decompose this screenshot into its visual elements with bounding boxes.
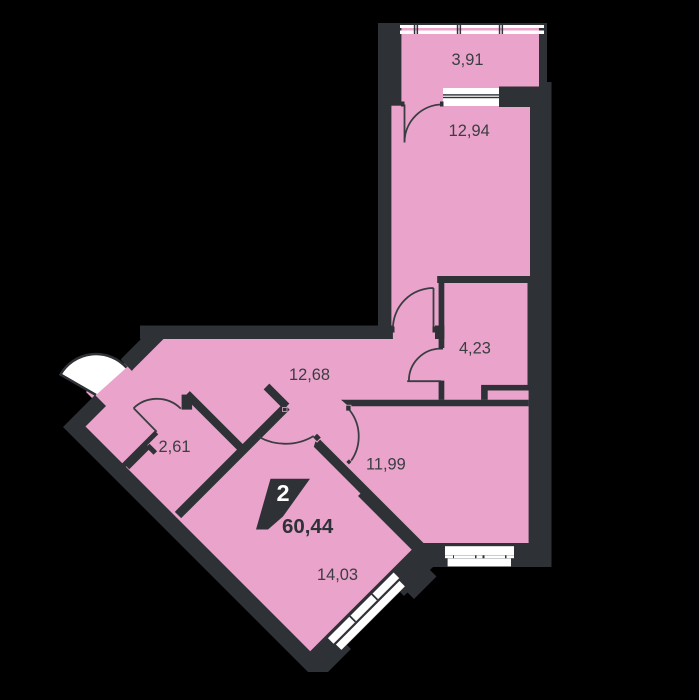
svg-text:11,99: 11,99 <box>366 455 406 473</box>
svg-text:12,94: 12,94 <box>449 122 490 140</box>
svg-text:60,44: 60,44 <box>282 515 334 538</box>
svg-text:2,61: 2,61 <box>159 438 191 456</box>
svg-text:2: 2 <box>276 480 289 506</box>
svg-text:12,68: 12,68 <box>289 366 330 384</box>
svg-text:4,23: 4,23 <box>459 340 491 358</box>
svg-text:14,03: 14,03 <box>317 566 358 584</box>
svg-text:3,91: 3,91 <box>452 51 484 69</box>
